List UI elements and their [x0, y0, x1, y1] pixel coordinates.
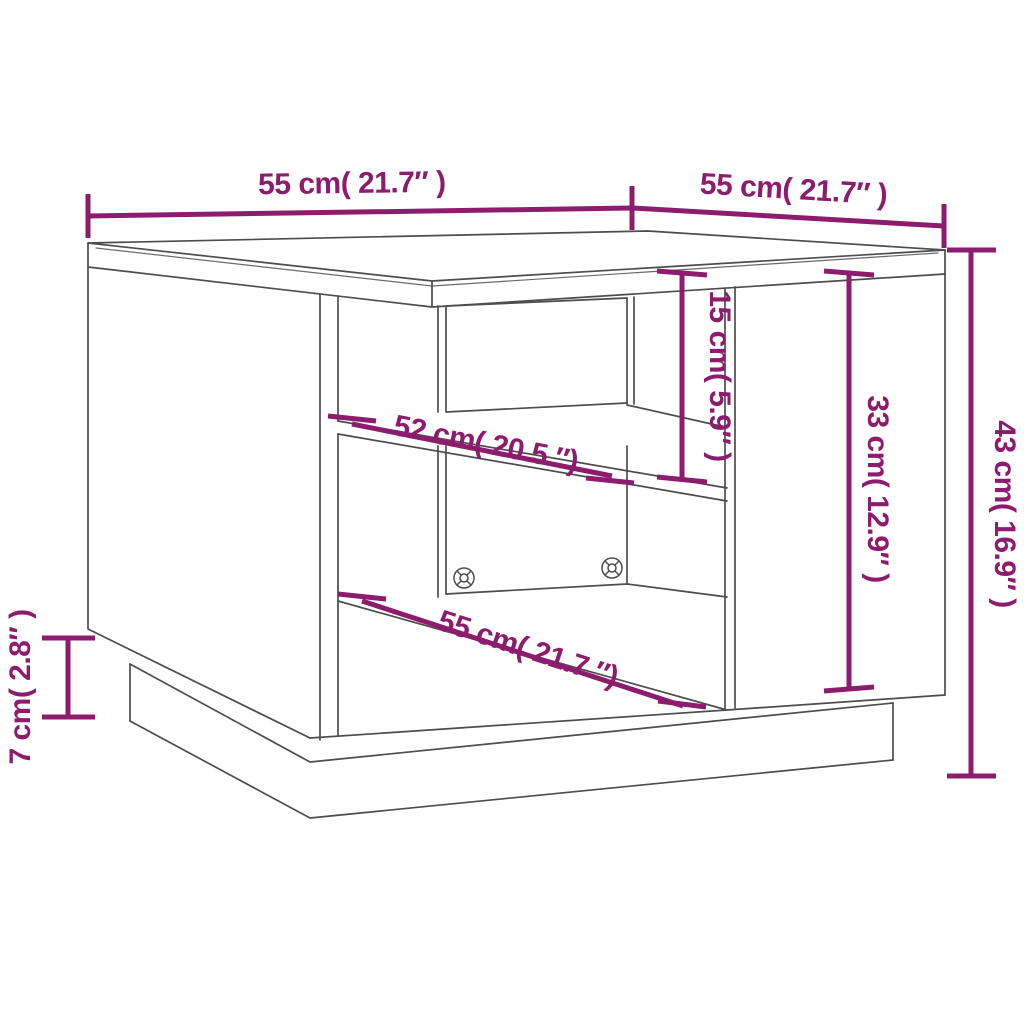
product-dimension-diagram: 55 cm( 21.7″ ) 55 cm( 21.7″ ) 43 cm( 16.… — [0, 0, 1024, 1024]
dimension-shelf-opening-height: 15 cm( 5.9″ ) — [657, 271, 736, 482]
dimension-label-shelf-opening-height: 15 cm( 5.9″ ) — [703, 290, 736, 461]
screw-icon — [454, 568, 474, 588]
dimension-middle-shelf-width: 52 cm( 20.5 ″) — [328, 409, 634, 483]
coffee-table-diagram: 55 cm( 21.7″ ) 55 cm( 21.7″ ) 43 cm( 16.… — [0, 0, 1024, 1024]
dimension-overall-height: 43 cm( 16.9″ ) — [947, 250, 1021, 776]
screw-icon — [602, 558, 622, 578]
dimension-label-middle-shelf-width: 52 cm( 20.5 ″) — [391, 409, 581, 478]
dimension-top-depth: 55 cm( 21.7″ ) — [632, 167, 944, 248]
dimension-top-width: 55 cm( 21.7″ ) — [88, 166, 632, 238]
dimension-label-door-panel-height: 33 cm( 12.9″ ) — [861, 395, 894, 582]
cabinet-bottom-edge — [310, 695, 945, 738]
dimension-door-panel-height: 33 cm( 12.9″ ) — [824, 271, 894, 691]
dimension-label-top-width: 55 cm( 21.7″ ) — [258, 166, 446, 202]
left-side-panel — [88, 267, 338, 740]
plinth-base — [130, 664, 893, 818]
dimension-plinth-height: 7 cm( 2.8″ ) — [4, 609, 95, 764]
dimension-bottom-shelf-width: 55 cm( 21.7 ″) — [338, 594, 706, 707]
dimension-label-bottom-shelf-width: 55 cm( 21.7 ″) — [434, 604, 622, 694]
dimension-label-top-depth: 55 cm( 21.7″ ) — [699, 167, 888, 211]
table-drawing — [88, 231, 945, 818]
tabletop — [88, 231, 945, 307]
dimension-label-overall-height: 43 cm( 16.9″ ) — [988, 420, 1021, 607]
dimension-label-plinth-height: 7 cm( 2.8″ ) — [4, 609, 37, 764]
